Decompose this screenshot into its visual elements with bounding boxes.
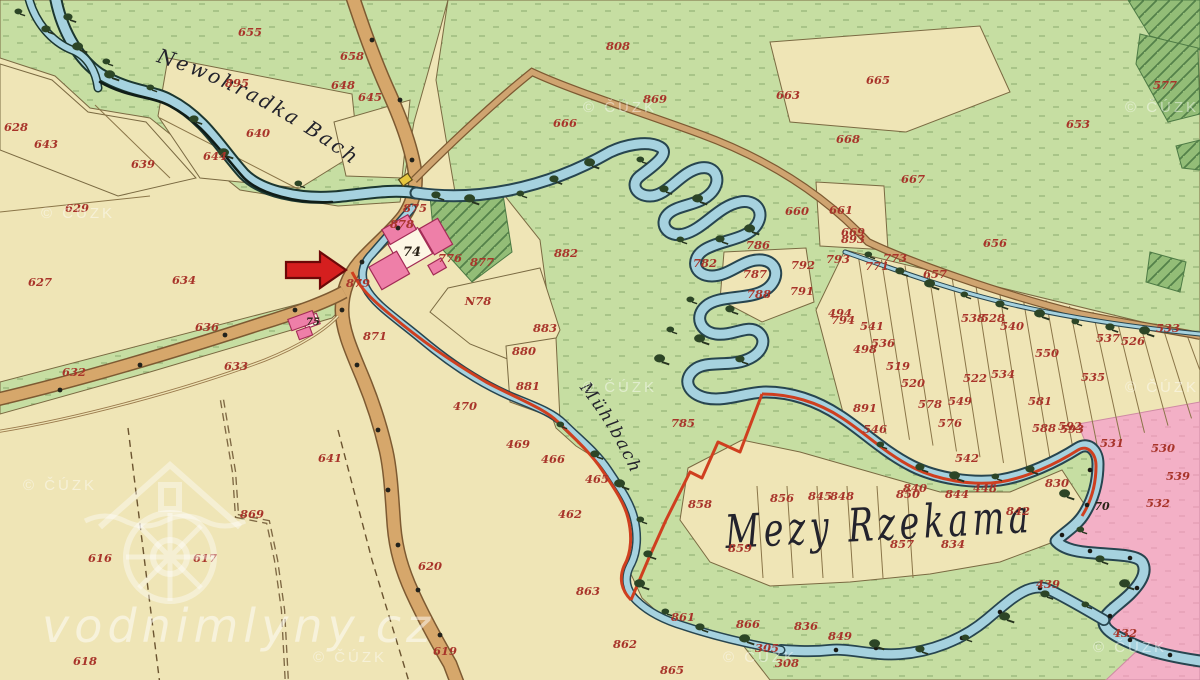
parcel-number: 842	[1006, 504, 1030, 518]
parcel-number: 883	[533, 321, 557, 335]
parcel-number: 519	[886, 359, 910, 373]
parcel-number: N78	[464, 294, 492, 308]
parcel-number: 534	[991, 367, 1015, 381]
parcel-number: 632	[62, 365, 86, 379]
parcel-number: 648	[331, 78, 355, 92]
parcel-number: 776	[438, 251, 462, 265]
parcel-number: 879	[346, 276, 370, 290]
parcel-number: 808	[606, 39, 630, 53]
parcel-number: 74	[403, 245, 421, 260]
parcel-number: 439	[1036, 577, 1060, 591]
parcel-number: 581	[1028, 394, 1052, 408]
parcel-number: 432	[1113, 626, 1137, 640]
parcel-number: 785	[671, 416, 695, 430]
parcel-number: 848	[830, 489, 854, 503]
parcel-number: 588	[1032, 421, 1056, 435]
cuzk-watermark: © ČÚZK	[1093, 639, 1167, 656]
parcel-number: 861	[671, 610, 695, 624]
parcel-number: 549	[948, 394, 972, 408]
parcel-number: 856	[770, 491, 794, 505]
parcel-number: 661	[829, 203, 853, 217]
parcel-number: 526	[1121, 334, 1145, 348]
parcel-number: 616	[88, 551, 112, 565]
parcel-number: 531	[1100, 436, 1124, 450]
parcel-number: 628	[4, 120, 28, 134]
parcel-number: 877	[470, 255, 494, 269]
parcel-number: 620	[418, 559, 442, 573]
parcel-number: 845	[808, 489, 832, 503]
map-canvas: Newohradka Bach Mühlbach Mezy Rzekama 65…	[0, 0, 1200, 680]
cuzk-watermark: © ČÚZK	[1125, 99, 1199, 116]
parcel-number: 498	[853, 342, 877, 356]
parcel-number: 882	[554, 246, 578, 260]
parcel-number: 880	[512, 344, 536, 358]
parcel-number: 469	[506, 437, 530, 451]
parcel-number: 830	[1045, 476, 1069, 490]
parcel-number: 520	[901, 376, 925, 390]
parcel-number: 593	[1060, 422, 1084, 436]
parcel-number: 658	[340, 49, 364, 63]
parcel-number: 878	[390, 217, 414, 231]
parcel-number: 834	[941, 537, 965, 551]
parcel-number: 546	[863, 422, 887, 436]
parcel-number: 550	[1035, 346, 1059, 360]
parcel-number: 836	[794, 619, 818, 633]
cuzk-watermark: © ČÚZK	[723, 649, 797, 666]
parcel-number: 462	[558, 507, 582, 521]
parcel-number: 895	[225, 76, 249, 90]
parcel-number: 465	[585, 472, 609, 486]
parcel-number: 865	[660, 663, 684, 677]
parcel-number: 787	[743, 267, 767, 281]
parcel-number: 633	[224, 359, 248, 373]
parcel-number: 891	[853, 401, 877, 415]
parcel-number: 786	[746, 238, 770, 252]
parcel-number: 791	[790, 284, 814, 298]
parcel-number: 849	[828, 629, 852, 643]
parcel-number: 70	[1094, 500, 1110, 513]
parcel-number: 656	[983, 236, 1007, 250]
parcel-number: 75	[306, 317, 320, 328]
parcel-number: 858	[688, 497, 712, 511]
parcel-number: 665	[866, 73, 890, 87]
parcel-number: 627	[28, 275, 52, 289]
parcel-number: 793	[826, 252, 850, 266]
parcel-number: 771	[865, 259, 889, 273]
historical-cadastral-map[interactable]: Newohradka Bach Mühlbach Mezy Rzekama 65…	[0, 0, 1200, 680]
parcel-number: 535	[1081, 370, 1105, 384]
cuzk-watermark: © ČÚZK	[583, 99, 657, 116]
cuzk-watermark: © ČÚZK	[23, 477, 97, 494]
parcel-number: 844	[945, 487, 969, 501]
parcel-number: 866	[736, 617, 760, 631]
parcel-number: 788	[747, 287, 771, 301]
parcel-number: 893	[841, 232, 865, 246]
parcel-number: 881	[516, 379, 540, 393]
cuzk-watermark: © ČÚZK	[41, 205, 115, 222]
parcel-number: 857	[890, 537, 914, 551]
parcel-number: 619	[433, 644, 457, 658]
parcel-number: 640	[246, 126, 270, 140]
parcel-number: 850	[896, 487, 920, 501]
parcel-number: 466	[541, 452, 565, 466]
parcel-number: 782	[693, 256, 717, 270]
parcel-number: 470	[453, 399, 477, 413]
parcel-number: 540	[1000, 319, 1024, 333]
parcel-number: 644	[203, 149, 227, 163]
parcel-number: 862	[613, 637, 637, 651]
parcel-number: 448	[973, 481, 997, 495]
parcel-number: 863	[576, 584, 600, 598]
parcel-number: 869	[240, 507, 264, 521]
parcel-number: 577	[1153, 78, 1177, 92]
parcel-number: 660	[785, 204, 809, 218]
parcel-number: 578	[918, 397, 942, 411]
parcel-number: 657	[923, 267, 947, 281]
parcel-number: 541	[860, 319, 884, 333]
parcel-number: 668	[836, 132, 860, 146]
parcel-number: 532	[1146, 496, 1170, 510]
parcel-number: 618	[73, 654, 97, 668]
parcel-number: 533	[1156, 321, 1180, 335]
parcel-number: 522	[963, 371, 987, 385]
parcel-number: 645	[358, 90, 382, 104]
parcel-number: 643	[34, 137, 58, 151]
site-watermark: vodnimlyny.cz	[42, 599, 435, 653]
cuzk-watermark: © ČÚZK	[1125, 379, 1199, 396]
parcel-number: 634	[172, 273, 196, 287]
parcel-number: 653	[1066, 117, 1090, 131]
parcel-number: 542	[955, 451, 979, 465]
parcel-number: 875	[403, 201, 427, 215]
parcel-number: 576	[938, 416, 962, 430]
parcel-number: 641	[318, 451, 342, 465]
cuzk-watermark: © ČÚZK	[583, 379, 657, 396]
parcel-number: 666	[553, 116, 577, 130]
parcel-number: 636	[195, 320, 219, 334]
parcel-number: 667	[901, 172, 925, 186]
parcel-number: 871	[363, 329, 387, 343]
parcel-number: 663	[776, 88, 800, 102]
parcel-number: 494	[828, 306, 852, 320]
parcel-number: 792	[791, 258, 815, 272]
parcel-number: 655	[238, 25, 262, 39]
parcel-number: 859	[728, 541, 752, 555]
parcel-number: 639	[131, 157, 155, 171]
parcel-number: 530	[1151, 441, 1175, 455]
parcel-number: 537	[1096, 331, 1120, 345]
parcel-number: 539	[1166, 469, 1190, 483]
